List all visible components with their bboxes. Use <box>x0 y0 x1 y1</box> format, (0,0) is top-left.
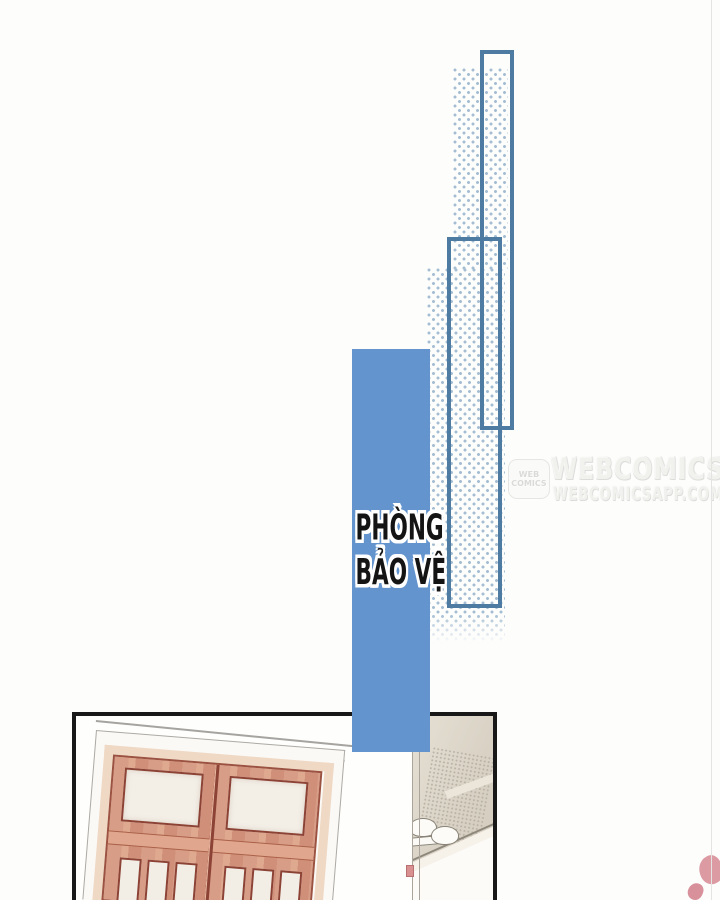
door-lower-panel <box>219 866 247 900</box>
door-window-right <box>225 776 308 836</box>
comic-page: PHÒNG BẢO VỆ WEB COMICS WEBCOMICS WEBCOM… <box>0 0 720 900</box>
watermark-name: WEBCOMICS <box>551 452 720 486</box>
webcomics-logo-icon: WEB COMICS <box>508 459 550 499</box>
watermark-domain: WEBCOMICSAPP.COM <box>553 483 720 505</box>
pink-petal <box>685 881 705 900</box>
door-lower-panel <box>170 862 198 900</box>
wall-alarm-box <box>406 865 414 877</box>
door-lower-panel <box>142 860 170 900</box>
door-window-left <box>121 767 204 827</box>
door-lower-panel <box>247 868 275 900</box>
logo-text-top: WEB <box>519 470 539 479</box>
logo-text-bottom: COMICS <box>511 479 546 488</box>
webcomics-watermark: WEB COMICS WEBCOMICS WEBCOMICSAPP.COM <box>505 450 715 516</box>
security-room-caption: PHÒNG BẢO VỆ <box>356 506 431 595</box>
door-lower-panel <box>114 857 142 900</box>
door-illustration <box>82 730 345 900</box>
door-lower-panel <box>275 870 303 900</box>
page-edge-line <box>711 0 712 900</box>
outlined-rectangle-bottom <box>447 237 502 608</box>
caption-line-2: BẢO VỆ <box>356 550 431 594</box>
wooden-double-door <box>101 754 322 900</box>
caption-line-1: PHÒNG <box>356 506 431 550</box>
ceiling-sprinkler-icon <box>431 826 459 845</box>
comic-panel <box>72 712 497 900</box>
door-center-divider <box>204 765 219 900</box>
